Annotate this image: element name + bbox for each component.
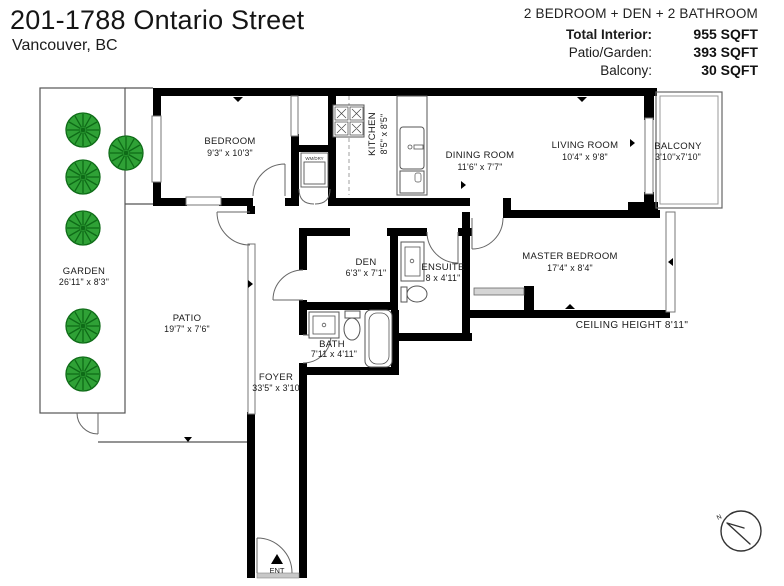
bedroom-closet-slider (291, 96, 298, 136)
garden-gate-door (77, 413, 98, 434)
tree-icon (66, 357, 100, 391)
room-label-den: DEN (356, 257, 377, 268)
entry-arrow-icon (271, 554, 283, 564)
ceiling-height-note: CEILING HEIGHT 8'11" (576, 320, 689, 331)
laundry-bifold-doors (299, 189, 330, 204)
room-dims-bedroom: 9'3" x 10'3" (207, 148, 253, 158)
room-label-kitchen: KITCHEN (367, 112, 378, 156)
room-dims-master: 17'4" x 8'4" (547, 263, 593, 273)
bedroom-door (253, 164, 285, 196)
room-label-foyer: FOYER (259, 372, 293, 383)
room-dims-kitchen: 8'5" x 8'5" (379, 114, 389, 155)
floorplan-drawing: WM/DRY (0, 0, 784, 586)
room-dims-ensuite: 8 x 4'11" (426, 273, 461, 283)
room-label-patio: PATIO (173, 313, 202, 324)
laundry-label: WM/DRY (305, 156, 323, 161)
room-dims-living: 10'4" x 9'8" (562, 152, 608, 162)
laundry-closet: WM/DRY (301, 153, 328, 187)
closet-sliding-door (474, 288, 524, 295)
tree-icon (66, 211, 100, 245)
tree-icon (109, 136, 143, 170)
entrance-label: ENT (270, 566, 285, 575)
room-dims-foyer: 33'5" x 3'10 (252, 383, 300, 393)
tree-icon (66, 160, 100, 194)
room-dims-garden: 26'11" x 8'3" (59, 277, 109, 287)
tree-icon (66, 113, 100, 147)
bedroom-window (152, 116, 161, 182)
garden-trees (66, 113, 143, 391)
room-dims-dining: 11'6" x 7'7" (457, 162, 502, 172)
ensuite-toilet-tank (401, 287, 407, 302)
den-door (273, 270, 303, 300)
room-label-bedroom: BEDROOM (204, 136, 255, 147)
washer-dryer-icon (304, 162, 325, 184)
room-label-dining: DINING ROOM (446, 150, 515, 161)
room-dims-bath: 7'11 x 4'11" (311, 349, 357, 359)
bedroom-south-window (186, 197, 221, 205)
ensuite-door (427, 232, 458, 264)
compass-arrow (727, 523, 750, 544)
floorplan-page: 201-1788 Ontario Street Vancouver, BC 2 … (0, 0, 784, 586)
north-compass-icon: N (716, 511, 761, 551)
room-dims-den: 6'3" x 7'1" (346, 268, 387, 278)
ensuite-toilet-icon (407, 286, 427, 302)
room-dims-balcony: 3'10''x7'10" (655, 152, 701, 162)
patio-door (217, 212, 250, 245)
room-label-ensuite: ENSUITE (421, 262, 464, 273)
balcony-door-window (645, 118, 653, 194)
room-label-balcony: BALCONY (654, 141, 702, 152)
room-label-living: LIVING ROOM (552, 140, 619, 151)
toilet-tank (345, 311, 360, 318)
room-dims-patio: 19'7" x 7'6" (164, 324, 210, 334)
master-door (472, 218, 503, 249)
room-label-master: MASTER BEDROOM (522, 251, 618, 262)
compass-north-label: N (716, 513, 723, 521)
room-label-garden: GARDEN (63, 266, 105, 277)
tree-icon (66, 309, 100, 343)
toilet-icon (344, 318, 360, 340)
entrance-marker: ENT (270, 554, 285, 575)
